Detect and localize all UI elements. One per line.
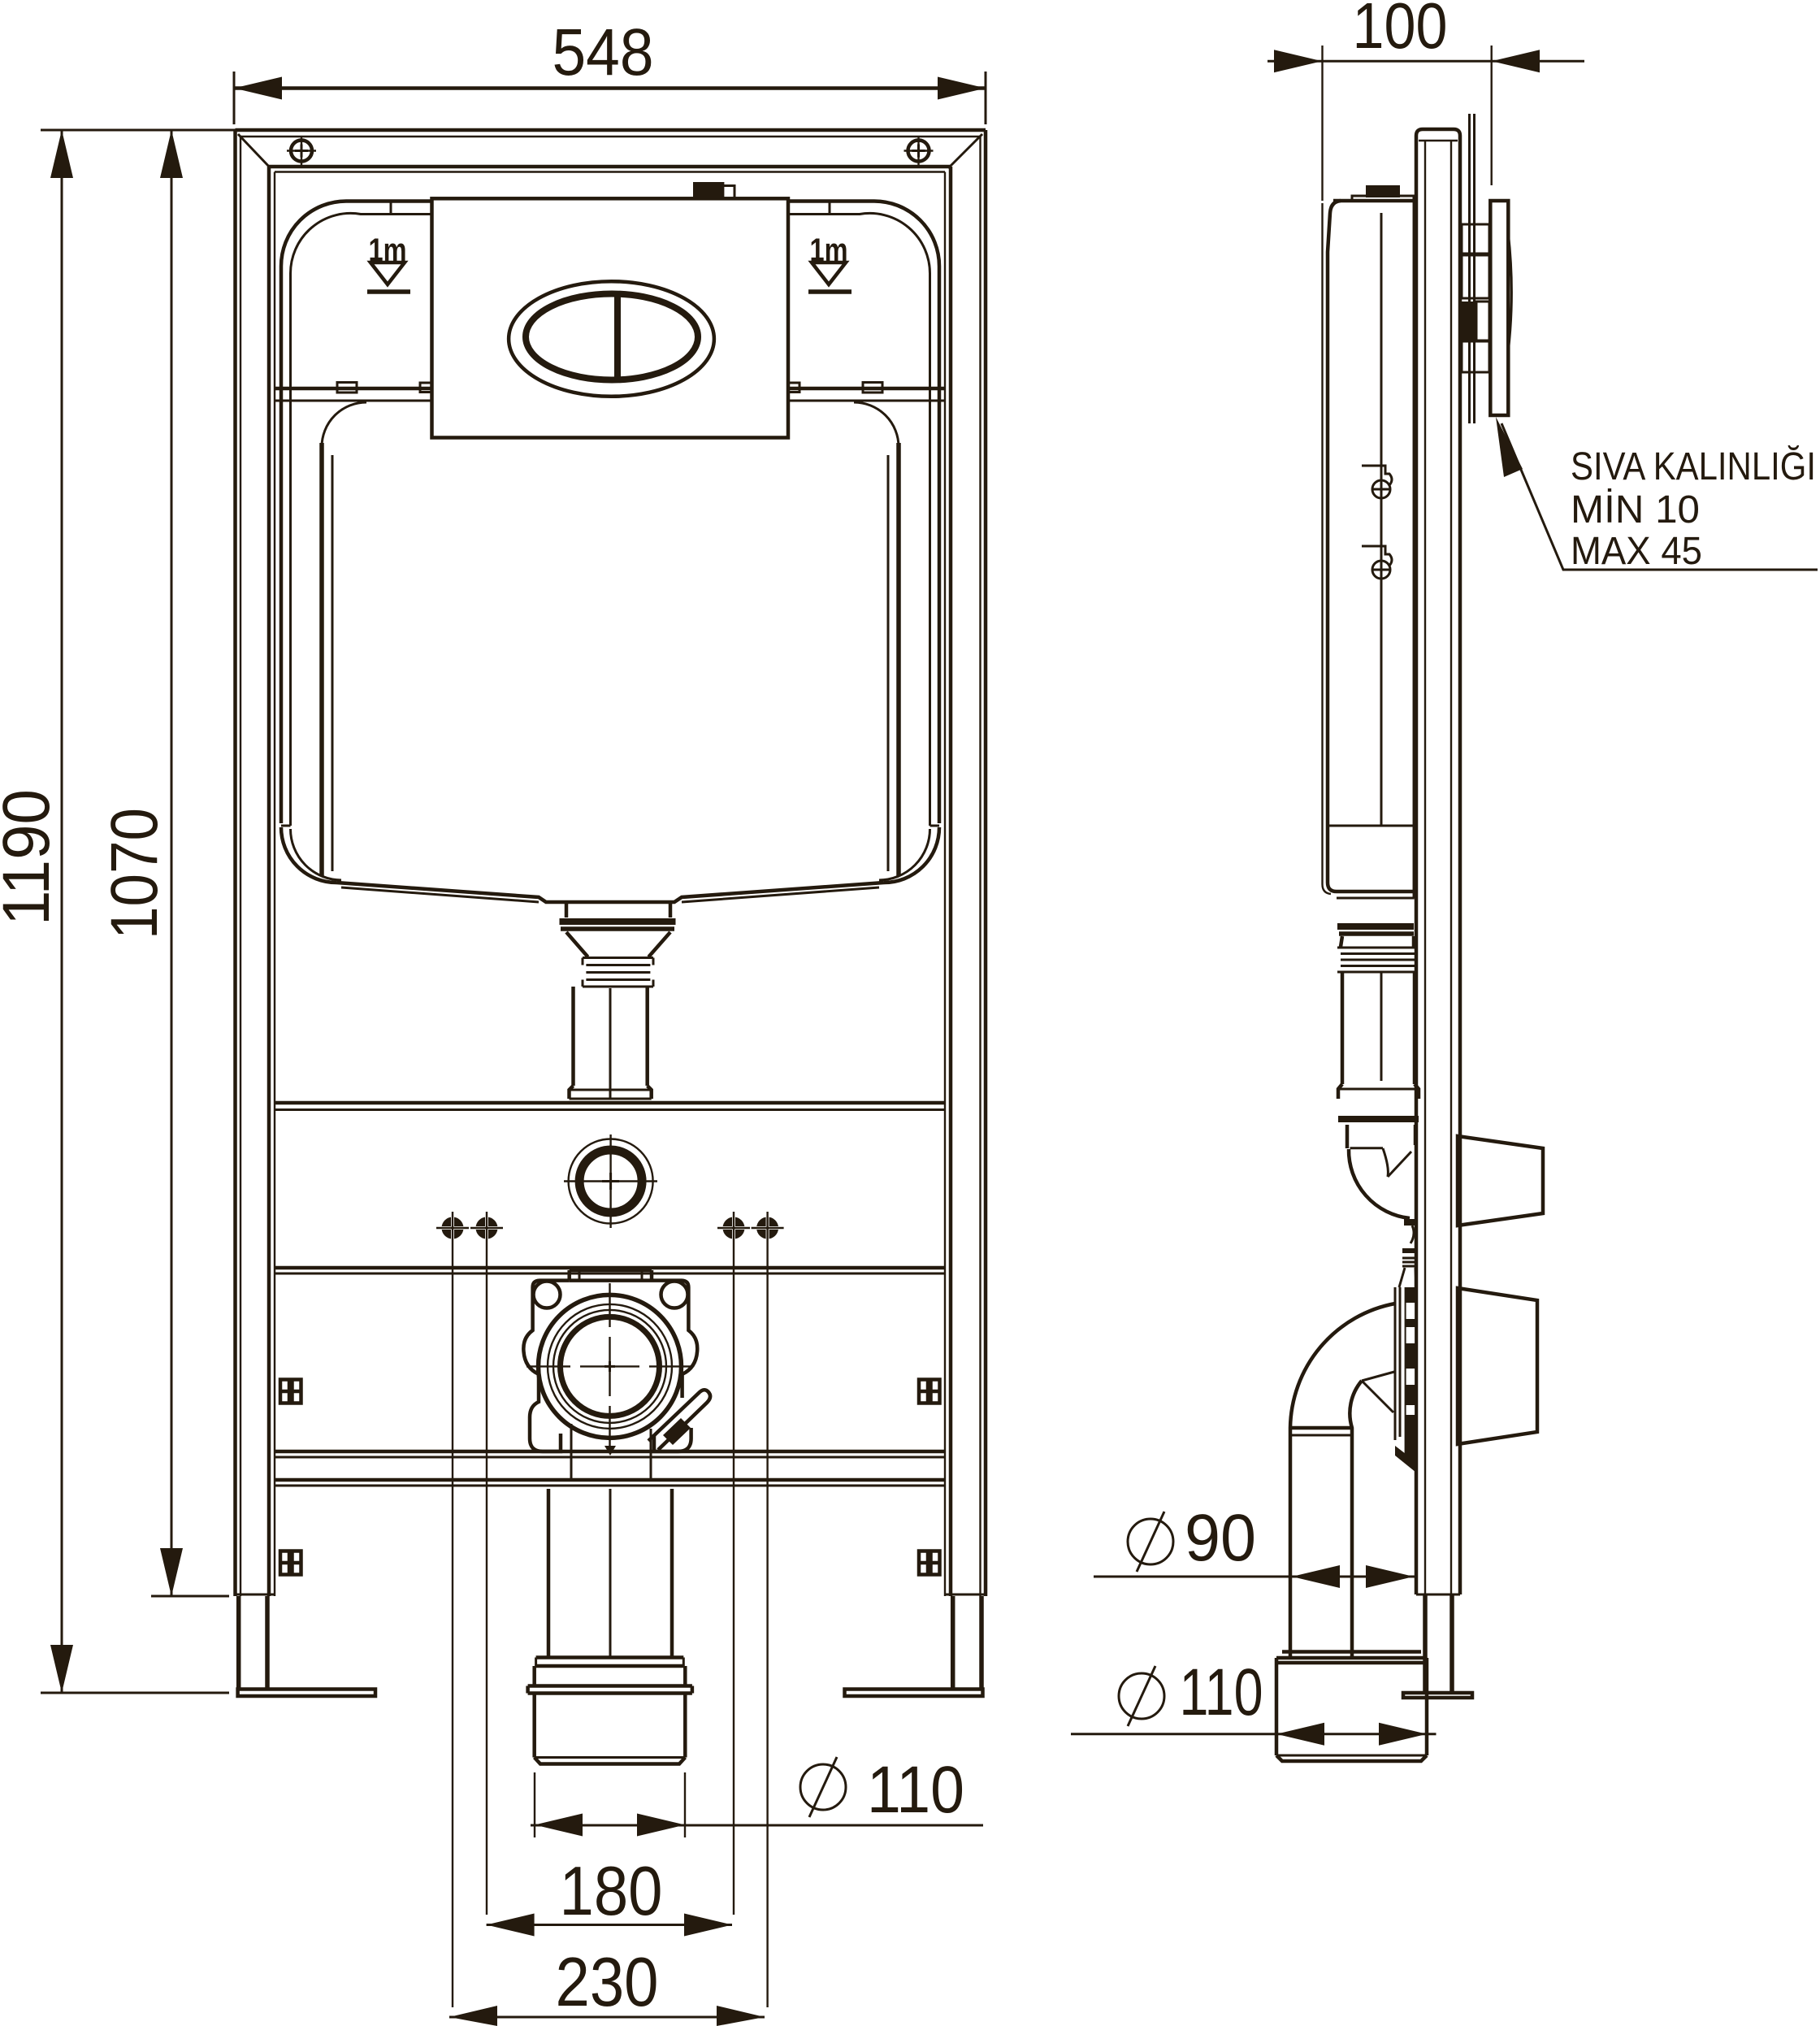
svg-text:100: 100 [1353, 0, 1448, 62]
svg-text:110: 110 [1180, 1655, 1263, 1729]
svg-text:548: 548 [552, 15, 654, 89]
svg-text:90: 90 [1185, 1501, 1256, 1575]
svg-text:1190: 1190 [0, 789, 63, 926]
svg-text:180: 180 [560, 1853, 663, 1930]
svg-text:MİN 10: MİN 10 [1571, 488, 1700, 531]
svg-text:230: 230 [556, 1944, 659, 2021]
svg-text:1070: 1070 [97, 808, 171, 939]
svg-text:110: 110 [867, 1753, 964, 1827]
svg-text:SIVA KALINLIĞI: SIVA KALINLIĞI [1571, 445, 1816, 488]
svg-text:MAX 45: MAX 45 [1571, 530, 1702, 573]
